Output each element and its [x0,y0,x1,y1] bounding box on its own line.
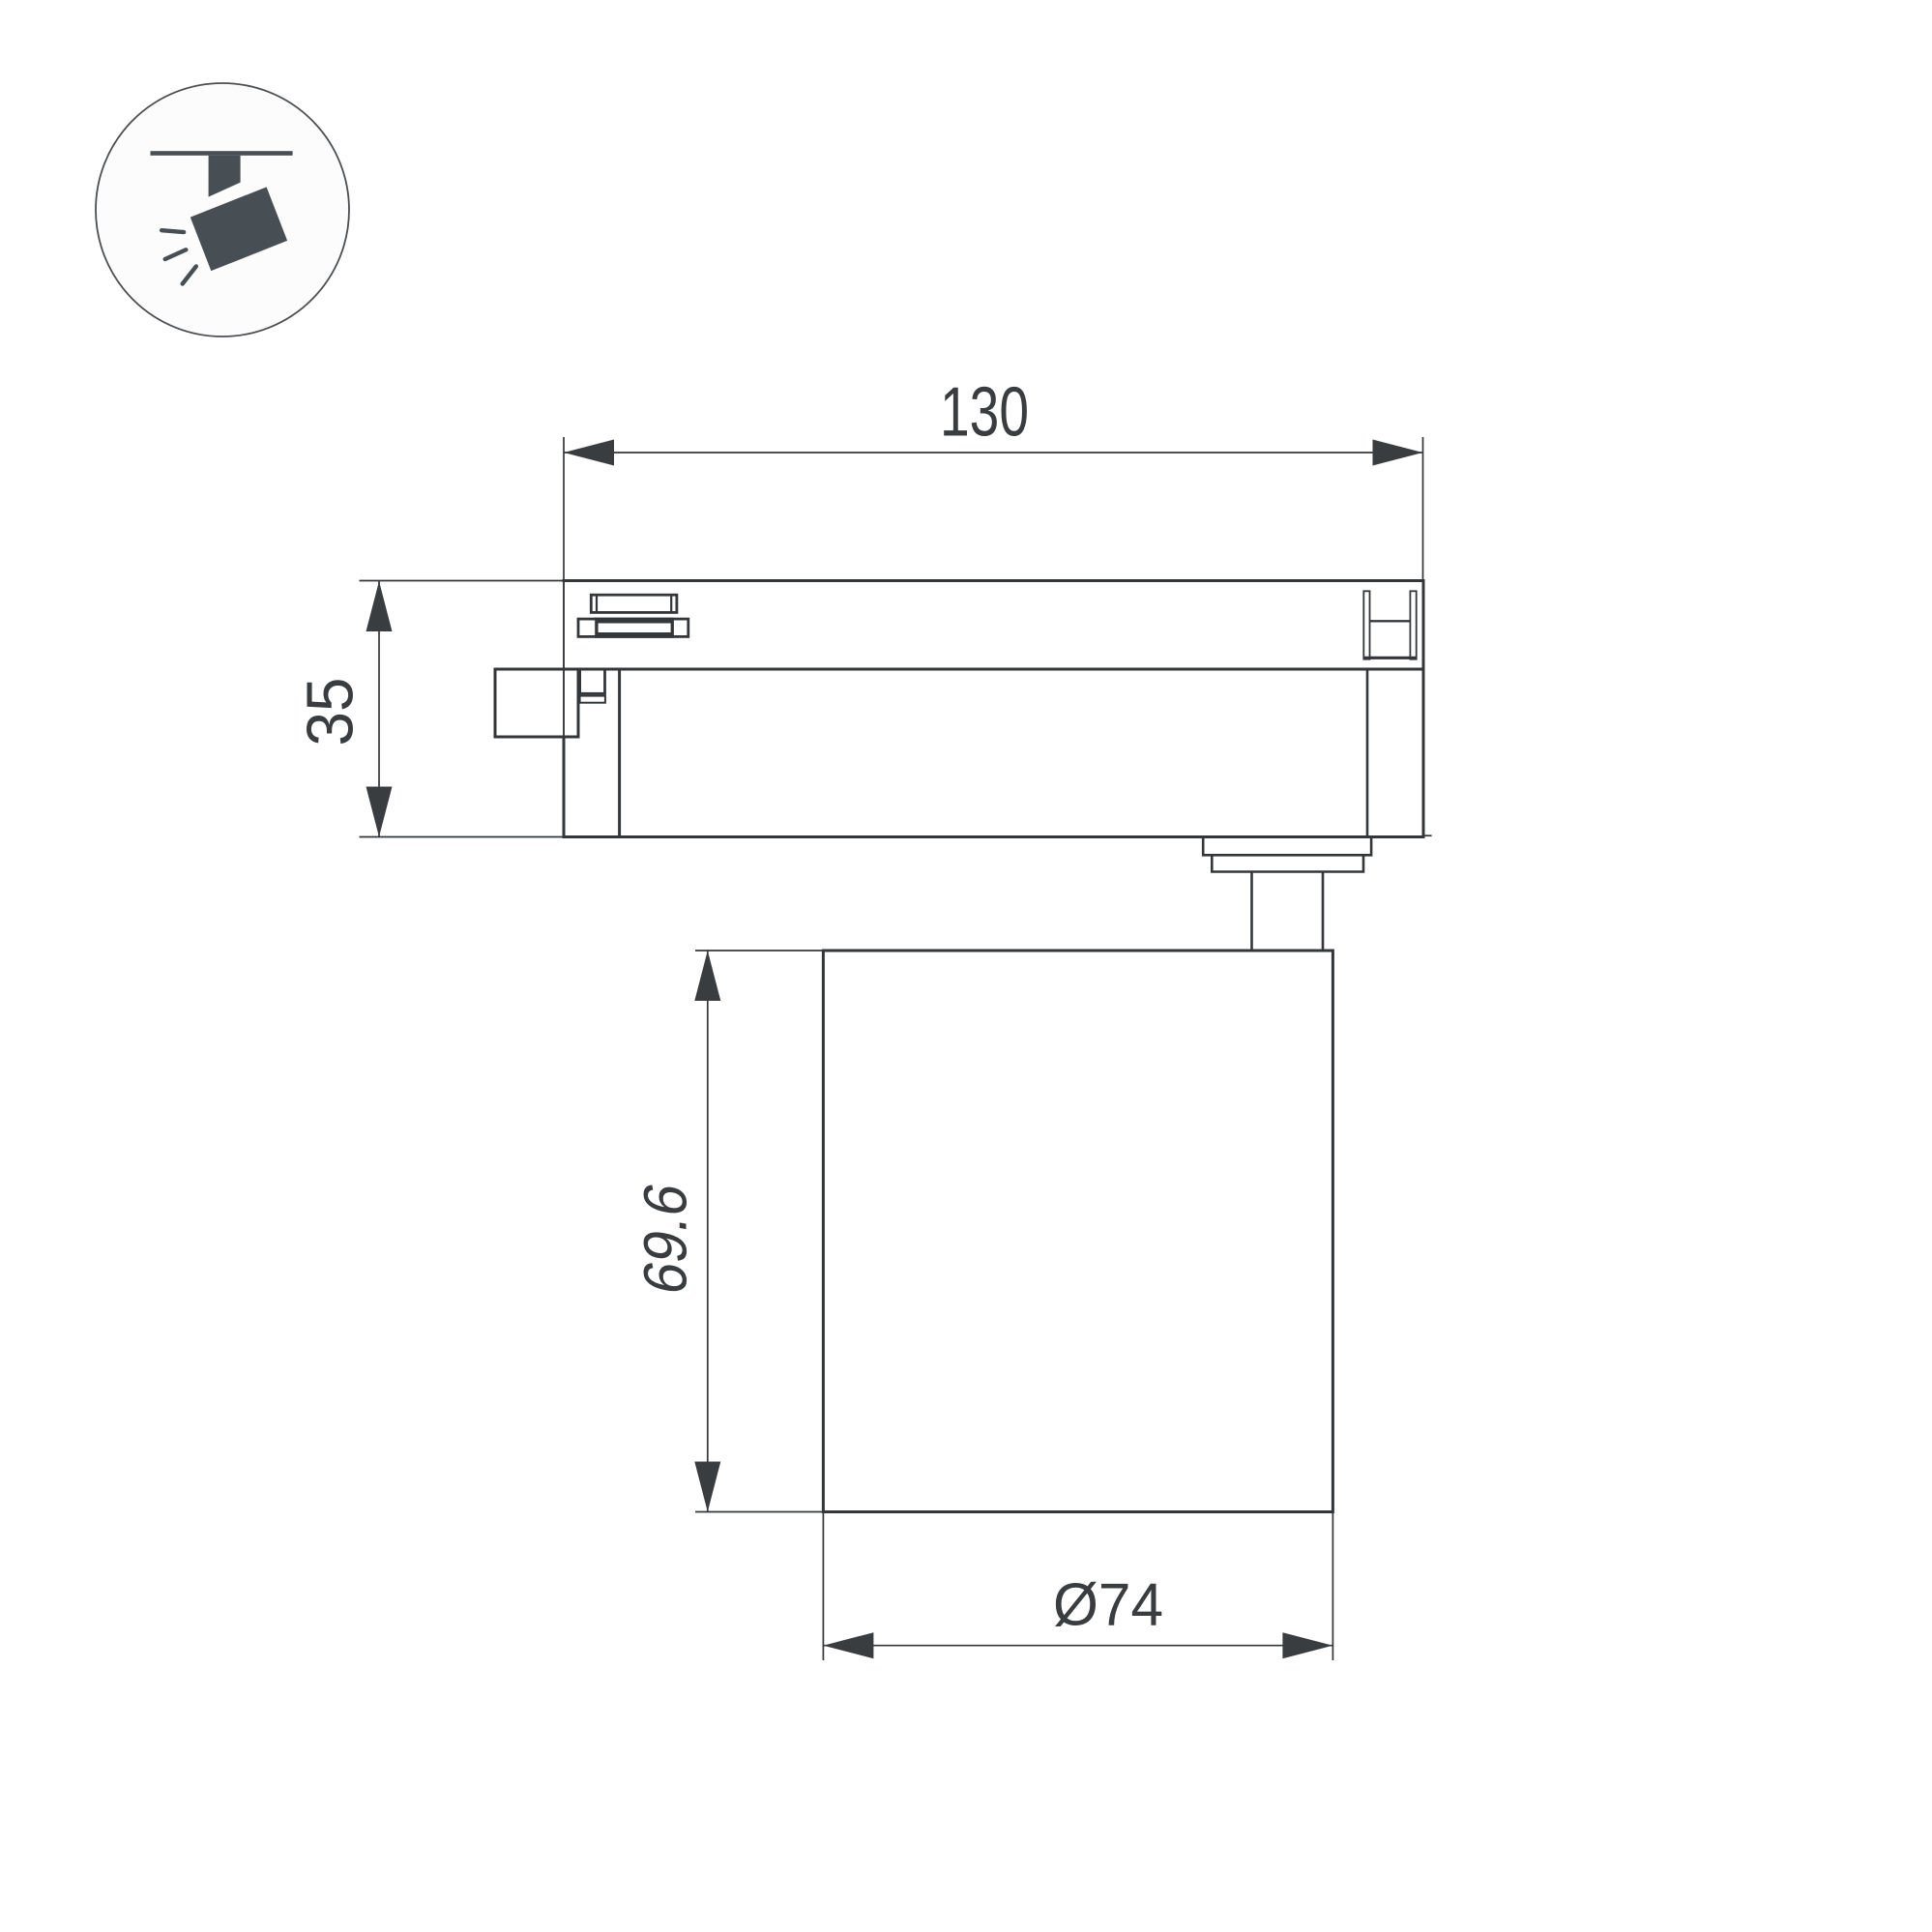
svg-text:69.6: 69.6 [632,1178,699,1299]
svg-text:Ø74: Ø74 [1053,1572,1163,1639]
svg-text:35: 35 [294,678,367,746]
svg-text:130: 130 [940,373,1029,452]
